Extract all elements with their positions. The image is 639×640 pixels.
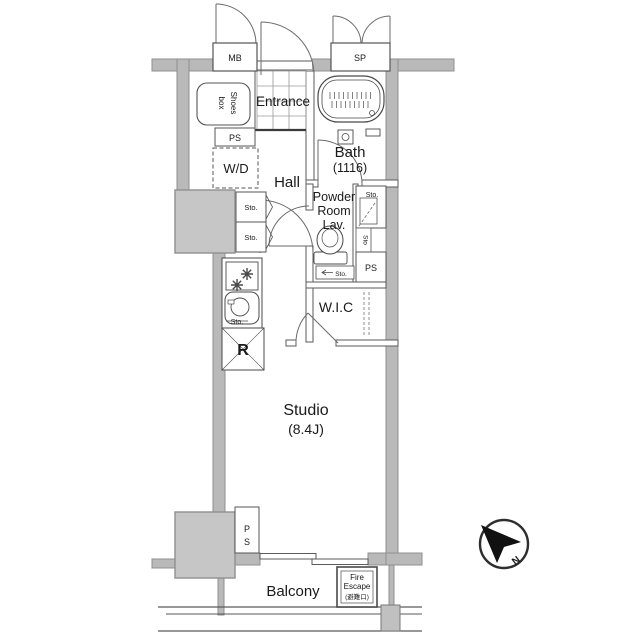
mb-label: MB — [228, 53, 242, 63]
sp-double-door — [333, 16, 390, 44]
sliding-window — [260, 554, 368, 565]
sink-faucet — [228, 300, 234, 304]
wall-wic-south-right — [336, 340, 398, 346]
bath-faucet — [366, 129, 380, 136]
sp-label: SP — [354, 53, 366, 63]
wall-wic-south-left — [286, 340, 296, 346]
wall-bottom-left-stub — [152, 559, 175, 568]
ps-upper-label: PS — [229, 133, 241, 143]
wic-door — [296, 313, 338, 343]
powder-label-2: Room — [317, 204, 350, 218]
ps-lower-label-1: P — [244, 524, 250, 534]
labels: MB SP Entrance Shoes box PS W/D Hall Bat… — [217, 53, 523, 601]
sto-closet-label: Sto. — [366, 192, 379, 199]
ps-lower-label-2: S — [244, 537, 250, 547]
bathtub-texture — [330, 92, 371, 108]
wall-top-mid — [312, 59, 331, 71]
powder-room-fixtures — [314, 226, 354, 279]
floor-plan-page: MB SP Entrance Shoes box PS W/D Hall Bat… — [0, 0, 639, 640]
studio-label: Studio — [283, 402, 328, 419]
sto-shelf-lower-label: Sto. — [244, 233, 257, 242]
shelf-door-fold-upper — [266, 195, 273, 219]
wd-label: W/D — [223, 161, 248, 176]
powder-room-door — [269, 206, 309, 246]
wall-right — [386, 59, 398, 565]
entrance-sill — [257, 60, 312, 71]
wall-bath-west — [306, 71, 314, 184]
fire-escape-label-3: (避難口) — [345, 592, 369, 601]
wall-balcony-right — [368, 553, 386, 565]
powder-label-1: Powder — [313, 190, 355, 204]
hall-label: Hall — [274, 174, 300, 191]
bath-size-label: (1116) — [333, 161, 367, 175]
bath-step — [338, 130, 353, 144]
wall-wic-west — [306, 246, 313, 342]
entrance-label: Entrance — [256, 94, 310, 109]
refrigerator-label: R — [237, 342, 249, 359]
ps-right-label: PS — [365, 263, 377, 273]
wic-area — [364, 292, 369, 336]
sto-vanity-label: Sto. — [335, 271, 347, 278]
fire-escape-label-1: Fire — [350, 573, 364, 582]
sto-kitchen-label: Sto. — [231, 319, 244, 326]
studio-size-label: (8.4J) — [288, 421, 324, 437]
wall-wic-north — [306, 282, 386, 288]
pillar-lower — [175, 512, 235, 578]
shoes-box-label-1: Shoes — [229, 92, 238, 115]
mb-door — [216, 4, 256, 44]
balcony-right-post — [389, 565, 394, 607]
storage-cabinet — [360, 198, 377, 224]
bathtub-drain — [370, 111, 375, 116]
floor-plan-drawing: MB SP Entrance Shoes box PS W/D Hall Bat… — [0, 0, 639, 640]
bath-step-drain — [342, 134, 349, 141]
bathtub-inner — [322, 80, 380, 118]
balcony-label: Balcony — [266, 583, 320, 600]
drain-box — [381, 605, 400, 631]
fire-escape-label-2: Escape — [344, 582, 371, 591]
wic-label: W.I.C — [319, 299, 353, 315]
pillar-upper — [175, 190, 235, 253]
stove — [226, 262, 258, 290]
wall-top-right-stub — [390, 59, 454, 71]
bath-area — [318, 76, 384, 144]
balcony-left-post — [218, 578, 224, 615]
sto-shelf-upper-label: Sto. — [244, 203, 257, 212]
bath-label: Bath — [335, 144, 366, 161]
sto-small-label: Sto — [362, 235, 369, 245]
shoes-box-label-2: box — [217, 97, 226, 110]
powder-label-3: Lav. — [323, 218, 346, 232]
